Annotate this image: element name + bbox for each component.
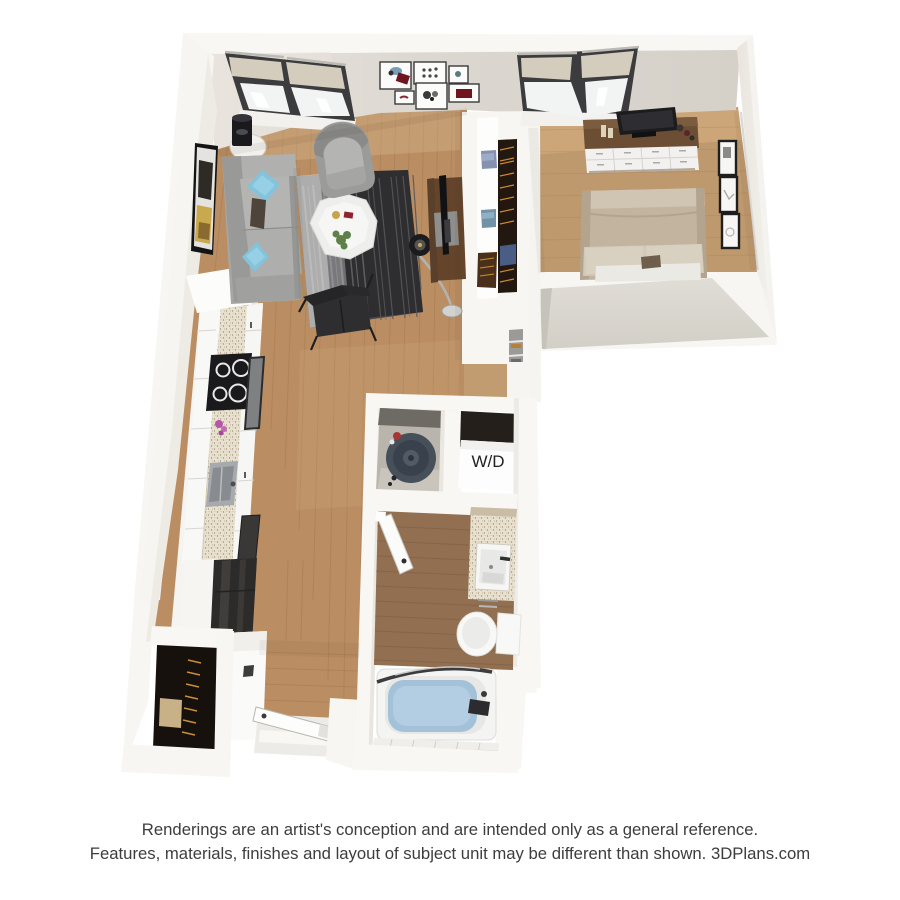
svg-text:W/D: W/D bbox=[471, 452, 504, 471]
